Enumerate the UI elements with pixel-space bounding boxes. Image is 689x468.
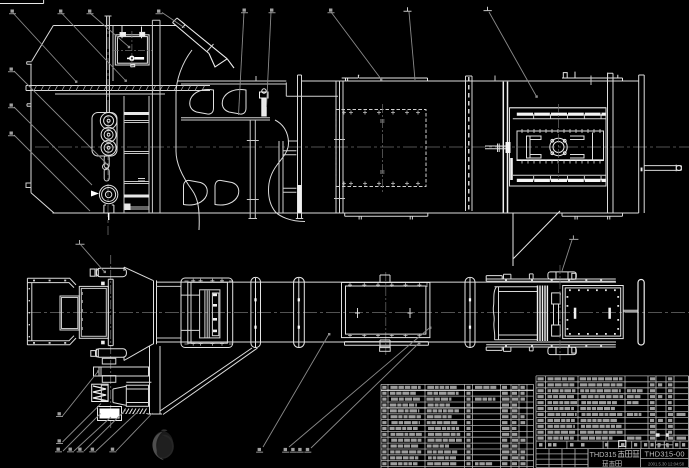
svg-text:2001.5.30 12:04:58: 2001.5.30 12:04:58 xyxy=(648,462,685,467)
svg-text:THD315: THD315 xyxy=(590,450,617,459)
svg-text:THD315-00: THD315-00 xyxy=(645,449,685,458)
